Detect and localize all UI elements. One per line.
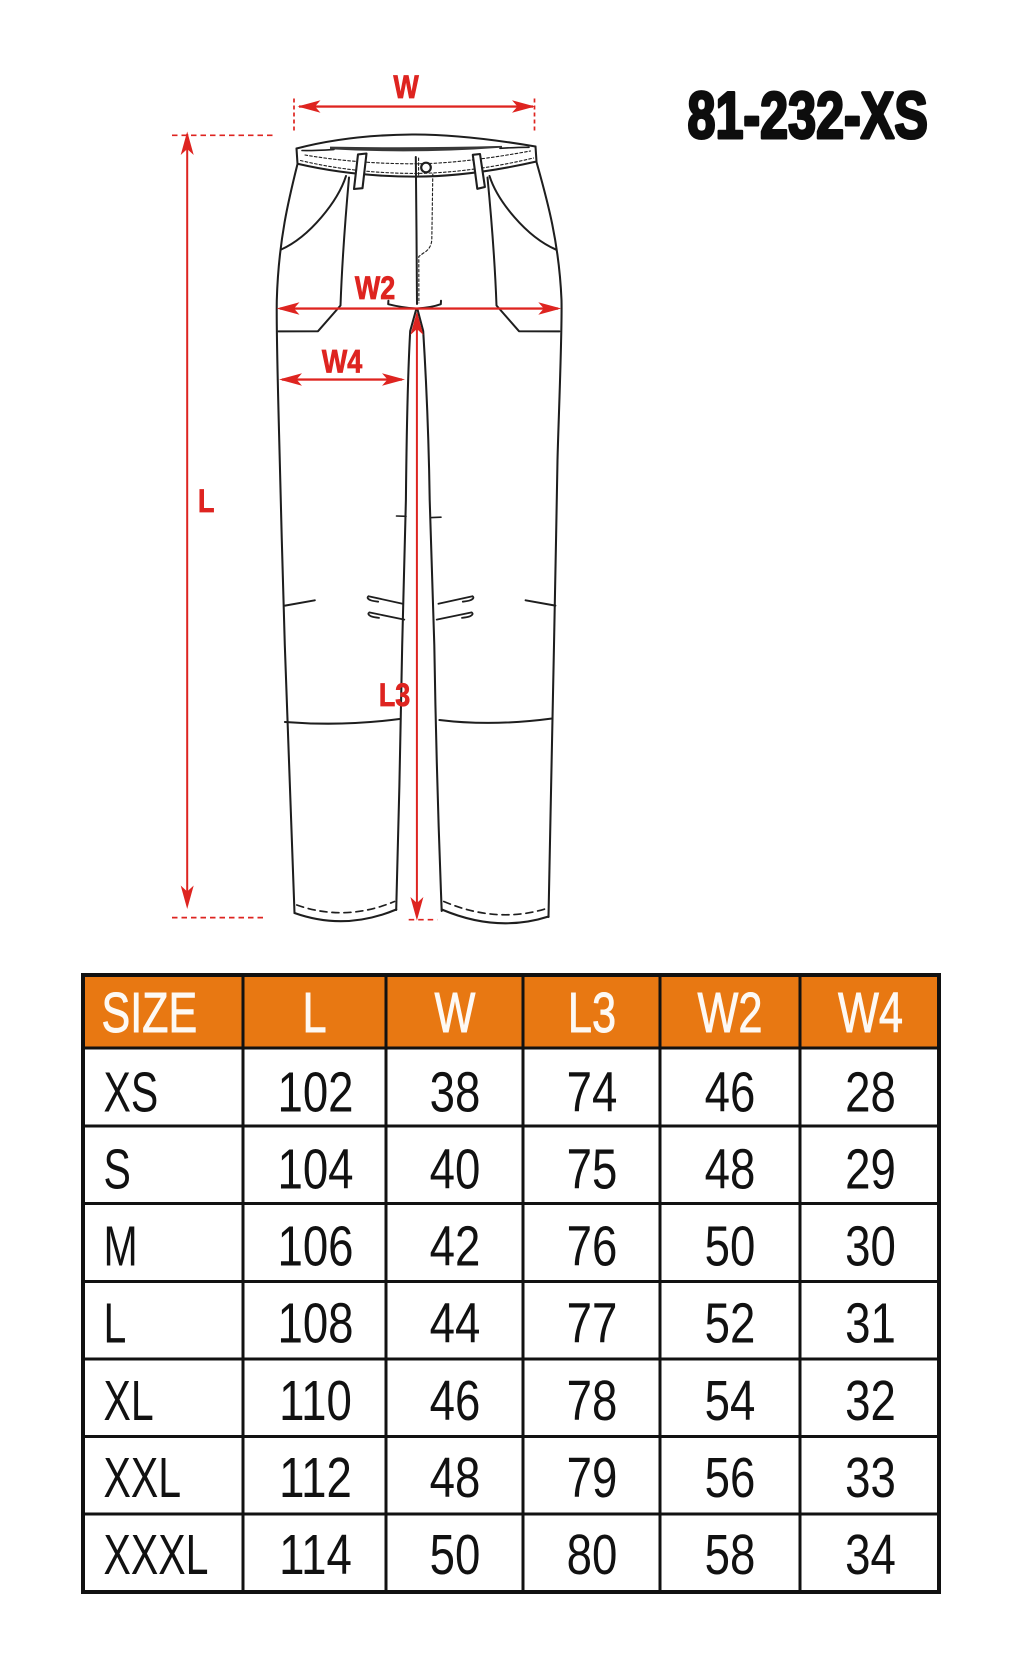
svg-text:SIZE: SIZE	[102, 980, 198, 1044]
svg-text:L3: L3	[568, 980, 616, 1044]
svg-text:29: 29	[845, 1136, 896, 1200]
svg-text:XXXL: XXXL	[104, 1523, 209, 1587]
svg-text:108: 108	[277, 1291, 353, 1355]
svg-text:77: 77	[567, 1291, 618, 1355]
svg-text:44: 44	[430, 1291, 481, 1355]
svg-text:50: 50	[430, 1522, 481, 1586]
svg-text:58: 58	[705, 1522, 756, 1586]
svg-text:XXL: XXL	[104, 1445, 182, 1509]
svg-text:81-232-XS: 81-232-XS	[688, 79, 928, 152]
svg-text:80: 80	[567, 1522, 618, 1586]
svg-text:L: L	[104, 1291, 127, 1355]
svg-text:75: 75	[567, 1136, 618, 1200]
svg-text:40: 40	[430, 1136, 481, 1200]
svg-text:34: 34	[845, 1522, 896, 1586]
svg-text:W: W	[435, 980, 476, 1044]
svg-text:48: 48	[705, 1136, 756, 1200]
svg-text:74: 74	[567, 1059, 618, 1123]
svg-text:104: 104	[277, 1136, 353, 1200]
svg-text:79: 79	[567, 1445, 618, 1509]
svg-text:L: L	[302, 980, 326, 1044]
svg-text:S: S	[104, 1137, 131, 1201]
svg-text:W4: W4	[322, 344, 363, 380]
svg-text:42: 42	[430, 1214, 481, 1278]
svg-text:112: 112	[279, 1445, 352, 1509]
svg-text:56: 56	[705, 1445, 756, 1509]
svg-text:38: 38	[430, 1059, 481, 1123]
svg-text:46: 46	[430, 1368, 481, 1432]
svg-text:32: 32	[845, 1368, 896, 1432]
svg-text:48: 48	[430, 1445, 481, 1509]
svg-text:28: 28	[845, 1059, 896, 1123]
svg-text:W2: W2	[698, 980, 763, 1044]
svg-text:XS: XS	[104, 1060, 159, 1124]
svg-text:106: 106	[277, 1214, 353, 1278]
svg-text:W4: W4	[838, 980, 903, 1044]
svg-text:50: 50	[705, 1214, 756, 1278]
svg-text:102: 102	[277, 1059, 353, 1123]
svg-text:76: 76	[567, 1214, 618, 1278]
svg-text:31: 31	[845, 1291, 896, 1355]
svg-text:78: 78	[567, 1368, 618, 1432]
svg-text:54: 54	[705, 1368, 756, 1432]
svg-text:M: M	[104, 1214, 138, 1278]
svg-text:W2: W2	[355, 271, 395, 307]
svg-text:XL: XL	[104, 1368, 154, 1432]
svg-text:52: 52	[705, 1291, 756, 1355]
svg-text:30: 30	[845, 1214, 896, 1278]
svg-text:46: 46	[705, 1059, 756, 1123]
svg-text:33: 33	[845, 1445, 896, 1509]
svg-text:114: 114	[279, 1522, 352, 1586]
svg-text:L: L	[198, 484, 214, 520]
svg-text:W: W	[393, 70, 418, 106]
svg-text:L3: L3	[379, 678, 410, 714]
svg-text:110: 110	[279, 1368, 352, 1432]
